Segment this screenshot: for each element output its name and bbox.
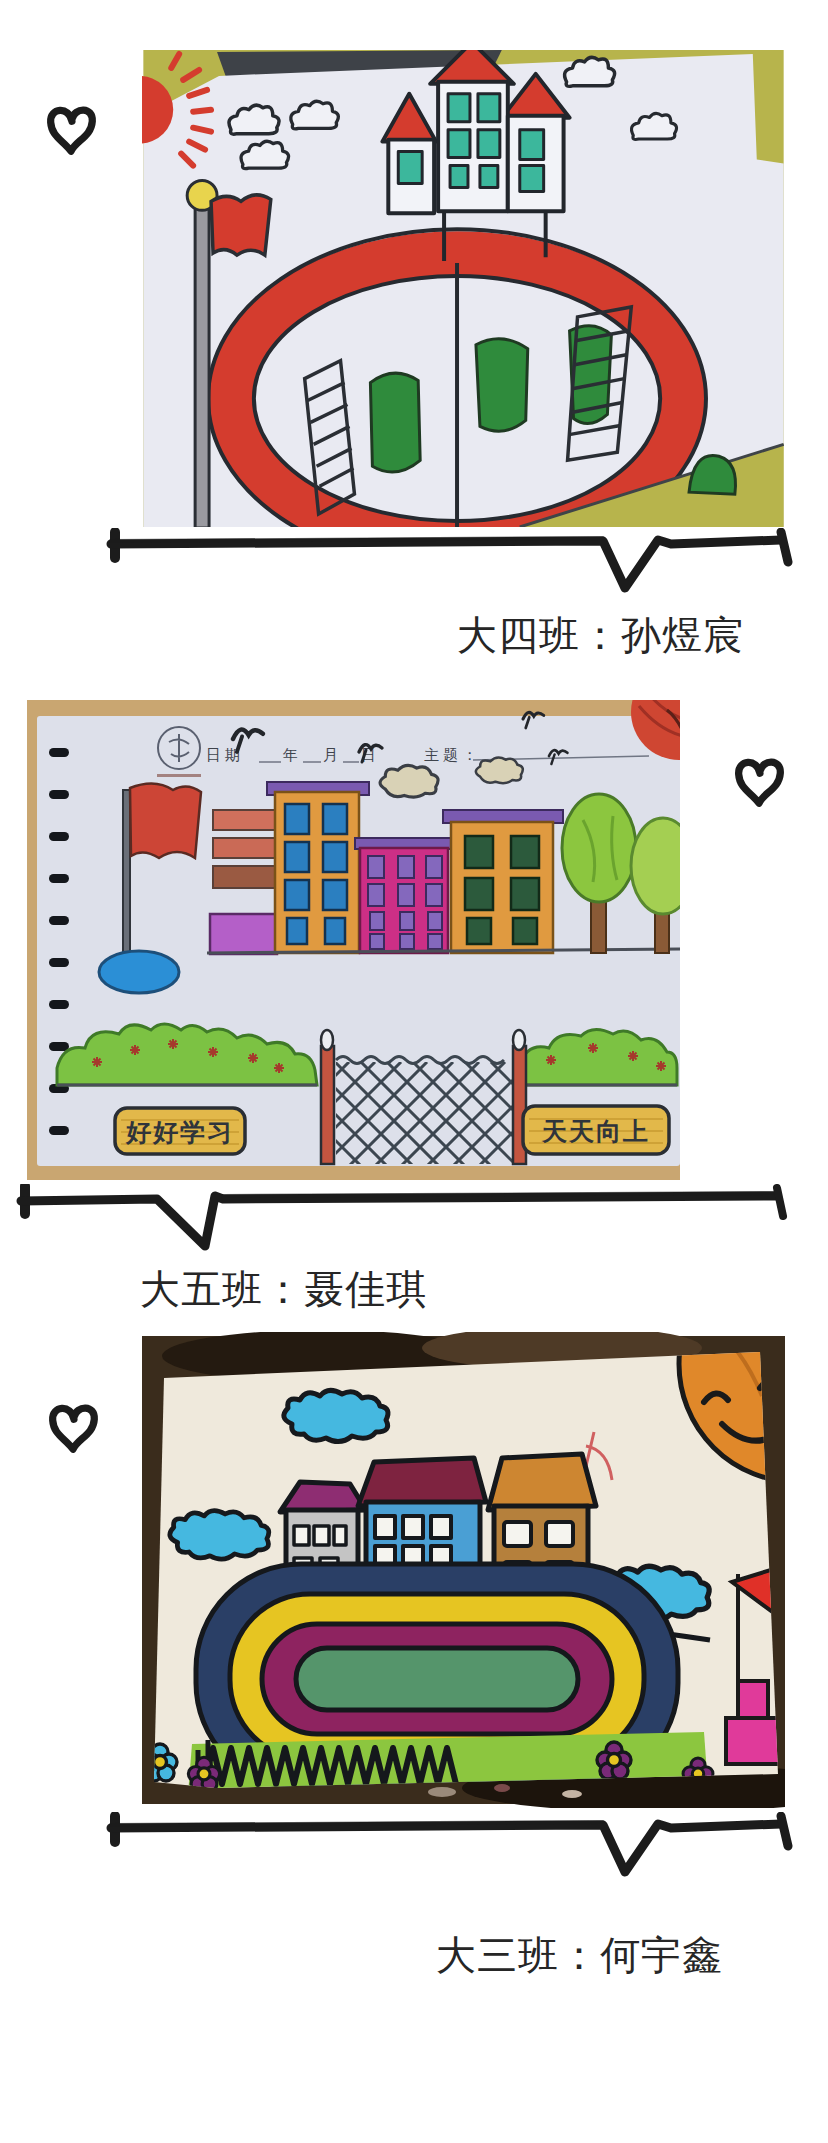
sign-right: 天天向上 (523, 1106, 669, 1154)
heart-doodle-icon (728, 750, 790, 810)
topic-label: 主题： (424, 746, 481, 763)
sign-left: 好好学习 (115, 1108, 245, 1154)
artwork-photo-1[interactable] (142, 50, 785, 527)
heart-doodle-icon (40, 98, 102, 158)
artwork-photo-2[interactable]: 日期 年 月 日 主题： (27, 700, 680, 1180)
month-label: 月 (323, 746, 342, 763)
artwork-caption: 大三班：何宇鑫 (436, 1928, 723, 1983)
sign-left-label: 好好学习 (125, 1118, 234, 1146)
year-label: 年 (282, 746, 302, 763)
article-body: 大四班：孙煜宸 (0, 0, 828, 2143)
brush-frame-tail (15, 1184, 805, 1262)
brush-frame-tail (105, 528, 805, 606)
artwork-photo-3[interactable] (142, 1332, 785, 1808)
brush-frame-tail (105, 1812, 805, 1890)
artwork-caption: 大四班：孙煜宸 (457, 608, 744, 663)
sign-right-label: 天天向上 (541, 1117, 650, 1145)
heart-doodle-icon (42, 1396, 104, 1456)
artwork-caption: 大五班：聂佳琪 (140, 1262, 427, 1317)
